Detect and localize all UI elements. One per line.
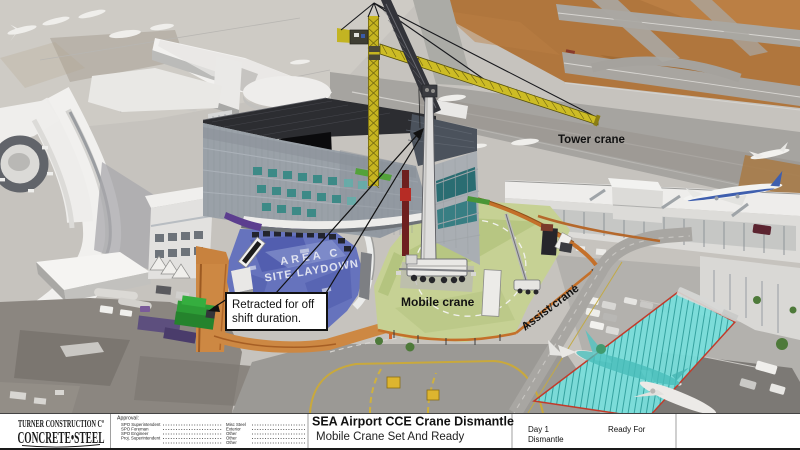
svg-text:Other: Other — [226, 440, 237, 445]
svg-text:Proj. Superintendent: Proj. Superintendent — [121, 436, 161, 441]
svg-text:Mobile Crane Set And Ready: Mobile Crane Set And Ready — [316, 431, 465, 443]
svg-text:CONCRETE•STEEL: CONCRETE•STEEL — [18, 428, 105, 447]
svg-text:Retracted for off: Retracted for off — [232, 299, 315, 311]
svg-text:shift duration.: shift duration. — [232, 313, 301, 325]
svg-text:Mobile crane: Mobile crane — [401, 295, 475, 309]
svg-text:Ready For: Ready For — [608, 425, 646, 434]
svg-text:Day 1: Day 1 — [528, 425, 549, 434]
svg-text:Dismantle: Dismantle — [528, 435, 564, 444]
svg-text:SEA Airport CCE Crane Dismantl: SEA Airport CCE Crane Dismantle — [312, 415, 514, 429]
svg-text:Approval:: Approval: — [117, 416, 139, 422]
svg-text:Tower crane: Tower crane — [558, 134, 625, 146]
